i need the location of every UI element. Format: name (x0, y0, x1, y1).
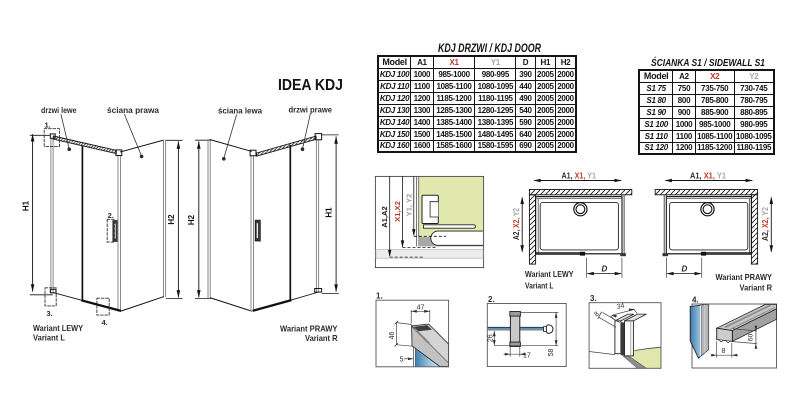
svg-text:A2, X2, Y2: A2, X2, Y2 (512, 207, 521, 240)
svg-text:58: 58 (548, 349, 555, 357)
svg-text:KDJ DRZWI / KDJ DOOR: KDJ DRZWI / KDJ DOOR (438, 43, 542, 55)
svg-text:H1: H1 (325, 207, 334, 218)
svg-text:X1,X2: X1,X2 (393, 201, 402, 222)
svg-text:A1, X1, Y1: A1, X1, Y1 (690, 172, 727, 181)
svg-text:Wariant LEWY: Wariant LEWY (525, 269, 574, 279)
svg-text:46: 46 (389, 332, 396, 340)
svg-text:Variant L: Variant L (525, 281, 554, 291)
svg-text:D: D (682, 264, 688, 273)
svg-text:D: D (602, 264, 608, 273)
svg-text:26: 26 (488, 334, 495, 342)
svg-text:2.: 2. (108, 211, 114, 220)
svg-text:H2: H2 (167, 214, 176, 225)
svg-text:3.: 3. (590, 294, 597, 303)
svg-text:Variant R: Variant R (740, 283, 773, 293)
svg-text:ściana prawa: ściana prawa (107, 106, 160, 115)
svg-text:drzwi lewe: drzwi lewe (41, 106, 77, 115)
svg-text:Y1, Y2: Y1, Y2 (404, 194, 413, 217)
svg-text:5: 5 (400, 357, 404, 364)
svg-text:Variant R: Variant R (305, 333, 338, 343)
svg-text:8: 8 (722, 348, 726, 355)
svg-text:1.: 1. (45, 121, 51, 130)
svg-text:ŚCIANKA S1 / SIDEWALL S1: ŚCIANKA S1 / SIDEWALL S1 (651, 56, 765, 69)
svg-text:A1,A2: A1,A2 (380, 206, 389, 228)
svg-text:8: 8 (593, 310, 601, 318)
svg-text:17: 17 (523, 353, 531, 360)
svg-text:A1, X1, Y1: A1, X1, Y1 (562, 172, 597, 181)
svg-text:4.: 4. (692, 295, 699, 304)
svg-text:IDEA KDJ: IDEA KDJ (278, 77, 343, 94)
svg-text:47: 47 (417, 305, 425, 312)
svg-text:A2, X2, Y2: A2, X2, Y2 (761, 206, 770, 241)
svg-text:1.: 1. (376, 292, 383, 301)
svg-text:60: 60 (748, 333, 755, 341)
svg-text:Variant L: Variant L (33, 332, 65, 342)
svg-text:Wariant PRAWY: Wariant PRAWY (716, 272, 773, 282)
svg-text:drzwi prawe: drzwi prawe (289, 106, 333, 115)
svg-text:3.: 3. (47, 309, 53, 318)
svg-text:34: 34 (616, 302, 625, 310)
svg-text:2.: 2. (488, 295, 495, 304)
svg-text:ściana lewa: ściana lewa (218, 107, 263, 116)
svg-text:4.: 4. (102, 318, 108, 327)
svg-text:H2: H2 (187, 214, 196, 225)
svg-text:H1: H1 (22, 200, 31, 211)
